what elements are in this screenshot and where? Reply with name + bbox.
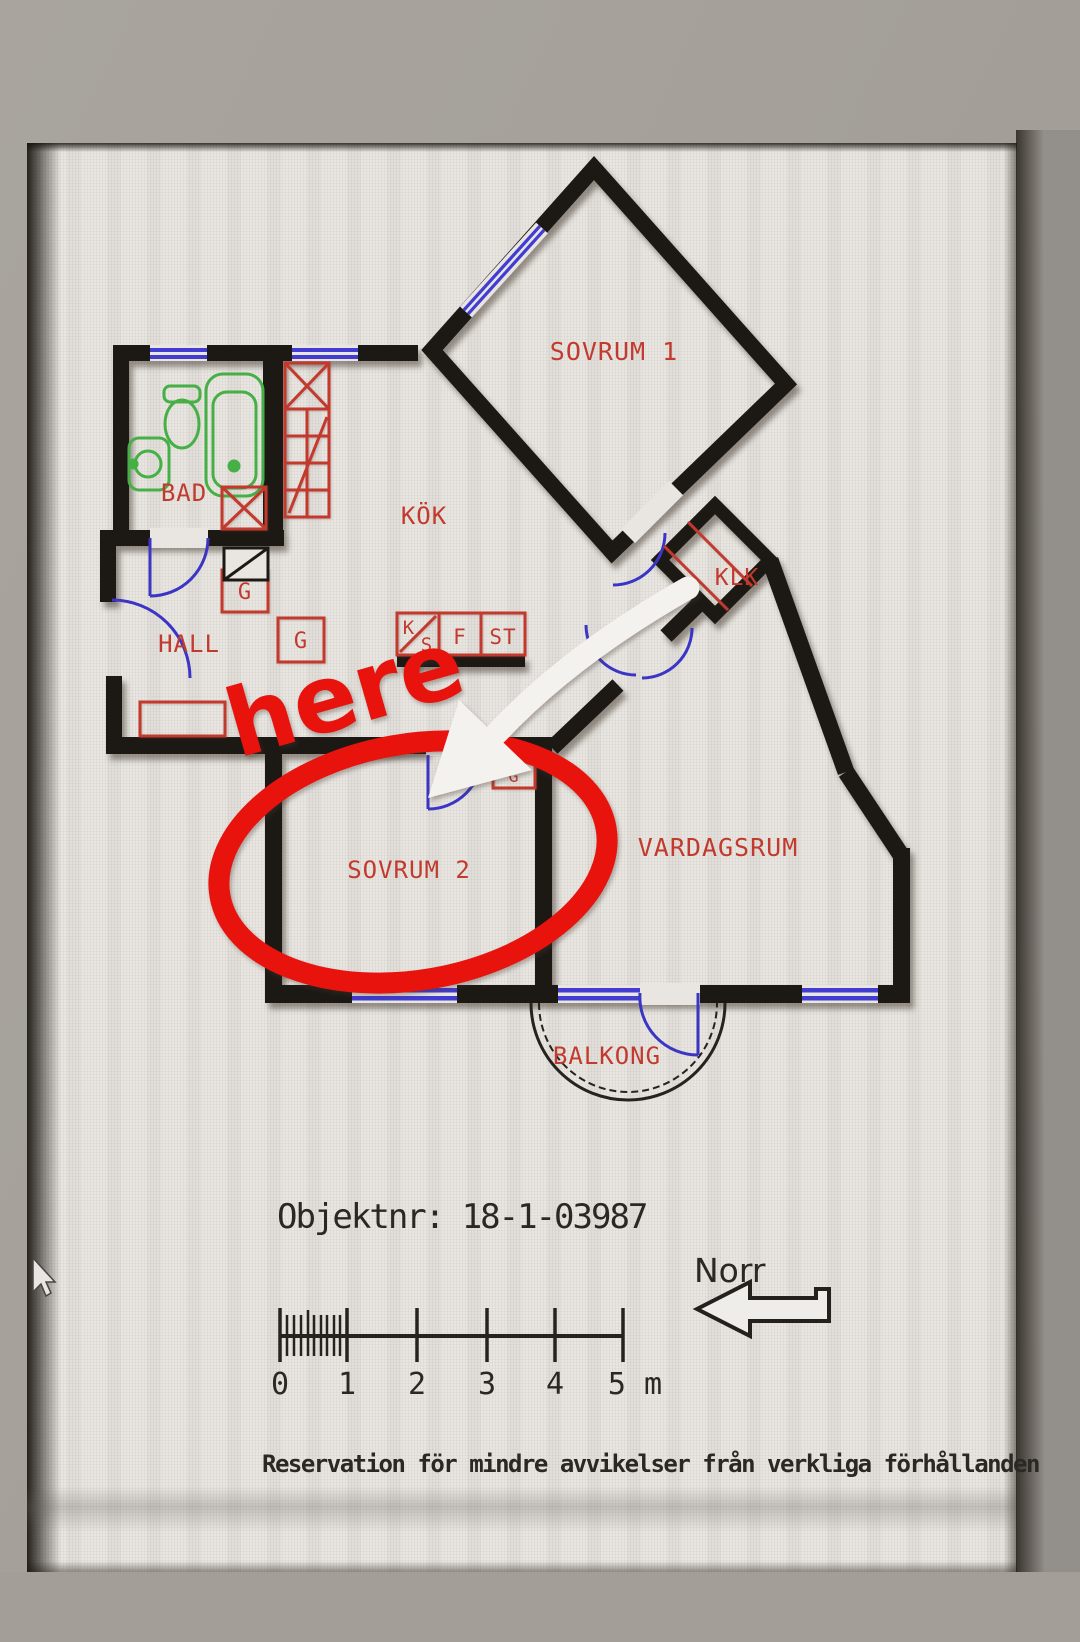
window-diagonal [466, 228, 542, 312]
window [802, 985, 878, 1003]
hall-wardrobe-box [140, 702, 225, 736]
floor-plan-drawing: SOVRUM 1 KÖK BAD HALL KLK SOVRUM 2 VARDA… [0, 0, 1080, 1642]
sink-tap-icon [129, 460, 137, 468]
scale-label-4: 4 [546, 1367, 564, 1402]
bath-fixtures [129, 374, 263, 496]
scale-label-2: 2 [408, 1367, 426, 1402]
room-label-hall: HALL [158, 630, 220, 658]
scale-label-0: 0 [271, 1367, 289, 1402]
bathtub-drain-icon [229, 461, 239, 471]
door-opening [150, 528, 208, 548]
wall-segment-diagonal [770, 560, 846, 772]
mouse-cursor-icon [33, 1258, 55, 1296]
room-label-sovrum2: SOVRUM 2 [347, 856, 471, 884]
scale-bar [280, 1308, 623, 1362]
footer: Objektnr: 18-1-03987 Norr [262, 1197, 1039, 1478]
wall-segment-diagonal [552, 685, 618, 748]
sink-basin-icon [135, 451, 161, 477]
room-label-kok: KÖK [401, 501, 447, 530]
shaft-box [224, 548, 268, 580]
wall-segment [113, 345, 129, 545]
window [150, 345, 207, 361]
room-label-vardagsrum: VARDAGSRUM [638, 833, 799, 862]
disclaimer-text: Reservation för mindre avvikelser från v… [262, 1449, 1039, 1478]
wall-segment [100, 530, 116, 602]
scale-label-1: 1 [338, 1367, 356, 1402]
windows [150, 228, 878, 1003]
room-label-klk: KLK [715, 565, 760, 591]
wall-segment-bevel [846, 772, 901, 855]
toilet-bowl-icon [165, 400, 199, 448]
scale-minor-ticks [287, 1310, 340, 1356]
north-arrow-icon [697, 1282, 829, 1336]
closet-g1-label: G [238, 580, 252, 605]
room-label-sovrum1: SOVRUM 1 [550, 337, 678, 366]
appliance-st-label: ST [489, 625, 516, 649]
room-label-bad: BAD [161, 479, 207, 507]
room-label-balkong: BALKONG [553, 1042, 661, 1070]
wall-segment [535, 753, 552, 993]
wall-segment [893, 848, 910, 1003]
north-label: Norr [694, 1251, 766, 1290]
hand-annotations: here [199, 588, 688, 1012]
scale-label-5m: 5 m [608, 1367, 662, 1402]
scale-labels: 0 1 2 3 4 5 m [271, 1367, 662, 1402]
object-number: Objektnr: 18-1-03987 [277, 1197, 646, 1237]
bathtub-inner-icon [213, 392, 256, 488]
photo-of-floorplan-screen: SOVRUM 1 KÖK BAD HALL KLK SOVRUM 2 VARDA… [0, 0, 1080, 1642]
door-opening-diagonal [628, 488, 676, 536]
door-opening [640, 983, 700, 1005]
window [558, 985, 640, 1003]
scale-label-3: 3 [478, 1367, 496, 1402]
window [292, 345, 358, 361]
